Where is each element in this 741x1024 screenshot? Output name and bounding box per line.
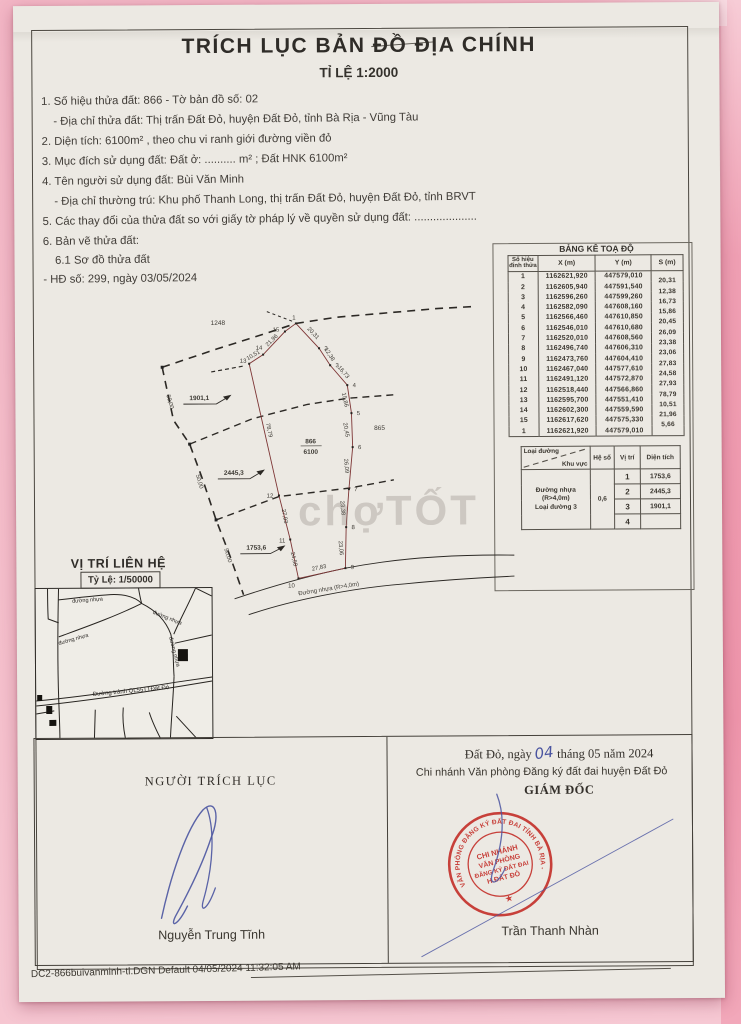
date-month: 05 (588, 747, 601, 761)
date-prefix: Đất Đỏ, ngày (465, 747, 532, 761)
svg-text:12: 12 (267, 494, 274, 500)
cell: 21,96 (652, 410, 684, 420)
cell: 1162467,040 (538, 364, 596, 375)
coefficient-cell: 0,6 (590, 469, 615, 529)
director-name: Trần Thanh Nhàn (418, 923, 683, 939)
cell: 1 (508, 271, 538, 282)
svg-text:10,51: 10,51 (246, 350, 262, 363)
svg-text:đường nhựa: đường nhựa (152, 610, 184, 627)
cell: 2 (508, 282, 538, 292)
neighbor-parcel-label: 865 (374, 425, 385, 432)
column-header: Y (m) (595, 255, 651, 271)
cell: 447566,860 (596, 384, 652, 395)
cell: 20,31 (651, 275, 683, 286)
date-thang: tháng (557, 747, 585, 761)
svg-text:4: 4 (353, 383, 357, 389)
cell: 78,79 (652, 389, 684, 399)
svg-text:26,09: 26,09 (342, 459, 349, 474)
road-type-cell: Đường nhựa (R>4,0m) Loại đường 3 (521, 469, 590, 529)
cell: 1162621,920 (538, 271, 596, 282)
cell: 4 (615, 514, 641, 529)
cell: 20,45 (651, 317, 683, 327)
info-section: 1. Số hiệu thửa đất: 866 - Tờ bản đồ số:… (13, 2, 719, 8)
svg-text:10: 10 (288, 583, 295, 589)
stamp-center-text: CHI NHÁNH VĂN PHÒNG ĐĂNG KÝ ĐẤT ĐAI H.ĐẤ… (469, 841, 537, 910)
cell: 447577,610 (596, 364, 652, 375)
table-row: 11162621,920447579,01020,31 (508, 270, 683, 282)
column-header: Số hiệu đỉnh thửa (508, 255, 538, 271)
svg-text:1753,6: 1753,6 (246, 545, 266, 552)
cell: 27,93 (652, 379, 684, 389)
cell: 447610,680 (596, 322, 652, 333)
cell: 16,73 (651, 296, 683, 306)
cell: 447559,590 (596, 405, 652, 416)
column-header: Hệ số (590, 446, 614, 469)
svg-text:20,45: 20,45 (341, 422, 350, 437)
road-edges (234, 555, 514, 615)
cell: 447575,330 (596, 415, 652, 426)
column-header: Vị trí (614, 446, 640, 469)
svg-text:15: 15 (273, 328, 280, 334)
bypass-road-label: Đường tránh QL55TTĐất Đỏ (93, 684, 171, 698)
svg-text:1901,1: 1901,1 (189, 395, 209, 402)
svg-text:23,06: 23,06 (337, 541, 344, 556)
corner-label-bottom: Khu vực (562, 461, 588, 468)
neighbor-parcel-label: 1248 (211, 320, 226, 327)
info-line: - HĐ số: 299, ngày 03/05/2024 (43, 272, 197, 286)
location-map-title: VỊ TRÍ LIÊN HỆ (58, 556, 178, 571)
coordinate-table-header: Số hiệu đỉnh thửa X (m) Y (m) S (m) (508, 255, 683, 272)
cell: 5,66 (652, 420, 684, 430)
info-line: 6. Bản vẽ thửa đất: (43, 235, 139, 248)
cell: 26,09 (652, 327, 684, 337)
svg-text:1: 1 (292, 315, 296, 321)
cell: 447599,260 (596, 291, 652, 302)
svg-text:50,00: 50,00 (222, 548, 232, 564)
cell: 12,38 (651, 286, 683, 296)
cell: 447608,560 (596, 333, 652, 344)
cell: 15,86 (651, 307, 683, 317)
cell: 447608,160 (596, 302, 652, 313)
cell: 1901,1 (640, 499, 680, 514)
left-signature (161, 806, 217, 924)
cell: 447591,540 (596, 281, 652, 292)
svg-text:27,83: 27,83 (312, 564, 327, 573)
svg-text:11: 11 (279, 539, 286, 545)
location-map-scale: Tỷ Lệ: 1/50000 (80, 571, 160, 588)
svg-text:50,00: 50,00 (164, 394, 174, 410)
svg-text:24,58: 24,58 (289, 552, 298, 567)
info-line: 4. Tên người sử dụng đất: Bùi Văn Minh (42, 174, 244, 188)
director-title: GIÁM ĐỐC (427, 782, 692, 799)
cell: 1162621,920 (539, 426, 597, 437)
cell: 1162602,300 (539, 405, 597, 416)
cell: 447610,850 (596, 312, 652, 323)
info-line: 6.1 Sơ đồ thửa đất (55, 254, 150, 267)
footer-underline (251, 968, 671, 978)
map-road-labels: đường nhựa đường nhựa đường nhựa đường n… (58, 596, 184, 669)
cell: 27,83 (652, 358, 684, 368)
svg-text:20,31: 20,31 (306, 326, 320, 341)
svg-text:đường nhựa: đường nhựa (58, 632, 90, 647)
location-map: đường nhựa đường nhựa đường nhựa đường n… (35, 587, 214, 740)
svg-text:866: 866 (305, 438, 316, 445)
location-map-roads: đường nhựa đường nhựa đường nhựa đường n… (36, 588, 213, 739)
cell: 1162595,700 (539, 395, 597, 406)
cell: 2445,3 (640, 484, 680, 499)
cell (641, 514, 681, 529)
cell: 10,51 (652, 399, 684, 409)
cell: 1753,6 (640, 469, 680, 484)
cell: 1162617,620 (539, 415, 597, 426)
coordinate-table-body: 11162621,920447579,01020,3121162605,9404… (508, 270, 684, 437)
cell: 447551,410 (596, 394, 652, 405)
column-header: X (m) (538, 255, 596, 271)
office-name: Chi nhánh Văn phòng Đăng ký đất đai huyệ… (392, 765, 692, 779)
coordinate-table-title: BẢNG KÊ TOẠ ĐỘ (508, 243, 684, 254)
cell: 2 (614, 484, 640, 499)
extractor-name: Nguyễn Trung Tĩnh (36, 927, 388, 943)
coordinate-table: Số hiệu đỉnh thửa X (m) Y (m) S (m) 1116… (507, 254, 684, 437)
parcel-sketch: Đường nhựa (R>4,0m) 1 2 3 4 5 6 7 8 9 10 (110, 298, 517, 622)
stamp-star-icon: ★ (504, 893, 514, 904)
svg-text:5: 5 (357, 411, 361, 417)
cell: 447572,870 (596, 374, 652, 385)
chotot-watermark: chợTỐT (298, 486, 479, 535)
cell: 1162605,940 (538, 282, 596, 293)
cell: 1162566,460 (538, 312, 596, 323)
document-title: TRÍCH LỤC BẢN ĐỒ ĐỊA CHÍNH (31, 32, 686, 60)
cell: 1162491,120 (538, 374, 596, 385)
column-header: Diện tích (640, 446, 680, 469)
svg-text:13: 13 (240, 359, 247, 365)
signature-section: NGƯỜI TRÍCH LỤC Nguyễn Trung Tĩnh Đất Đỏ… (33, 734, 693, 966)
road-type-line: Loại đường 3 (522, 503, 590, 512)
cell: 3 (614, 499, 640, 514)
cell: 447604,410 (596, 353, 652, 364)
cell: 1162520,010 (538, 333, 596, 344)
svg-text:12,38: 12,38 (322, 347, 335, 362)
cell: 24,58 (652, 368, 684, 378)
photo-of-cadastral-document: { "document": { "title": "TRÍCH LỤC BẢN … (0, 0, 741, 1024)
cell: 1 (614, 469, 640, 484)
cell: 1162496,740 (538, 343, 596, 354)
document-paper: TRÍCH LỤC BẢN ĐỒ ĐỊA CHÍNH TỈ LỆ 1:2000 … (13, 2, 725, 1002)
cell: 1162596,260 (538, 292, 596, 303)
cell: 1162473,760 (538, 354, 596, 365)
cell: 23,06 (652, 348, 684, 358)
svg-text:27,93: 27,93 (280, 509, 289, 524)
cell: 447606,310 (596, 343, 652, 354)
cell: 23,38 (652, 337, 684, 347)
cell: 1162546,010 (538, 323, 596, 334)
road-classification-table: Loại đường Khu vực Hệ số Vị trí Diện tíc… (521, 445, 682, 530)
date-nam: năm (604, 746, 626, 760)
svg-text:6: 6 (358, 445, 362, 451)
extractor-title: NGƯỜI TRÍCH LỤC (35, 773, 387, 790)
svg-text:16,73: 16,73 (336, 365, 350, 380)
place-date-line: Đất Đỏ, ngày 04 tháng 05 năm 2024 (426, 743, 691, 763)
column-header: S (m) (651, 255, 683, 271)
parcel-number-area: 866 6100 (301, 438, 322, 456)
cell: 1162582,090 (538, 302, 596, 313)
road-name-label: Đường nhựa (R>4,0m) (298, 581, 360, 597)
cell: 447579,010 (597, 425, 653, 436)
svg-text:21,96: 21,96 (265, 334, 279, 349)
corner-label-top: Loại đường (524, 448, 559, 455)
cell (652, 430, 684, 441)
diagonal-header-cell: Loại đường Khu vực (521, 446, 590, 469)
table-row: Đường nhựa (R>4,0m) Loại đường 3 0,6 1 1… (521, 469, 680, 485)
svg-text:9: 9 (351, 565, 355, 571)
svg-text:6100: 6100 (303, 449, 318, 456)
svg-text:2445,3: 2445,3 (224, 470, 244, 477)
date-year: 2024 (628, 746, 653, 760)
cell: 447579,010 (596, 270, 652, 281)
handwritten-day: 04 (534, 743, 556, 764)
svg-text:đường nhựa: đường nhựa (72, 596, 104, 604)
cell: 1162518,440 (538, 384, 596, 395)
